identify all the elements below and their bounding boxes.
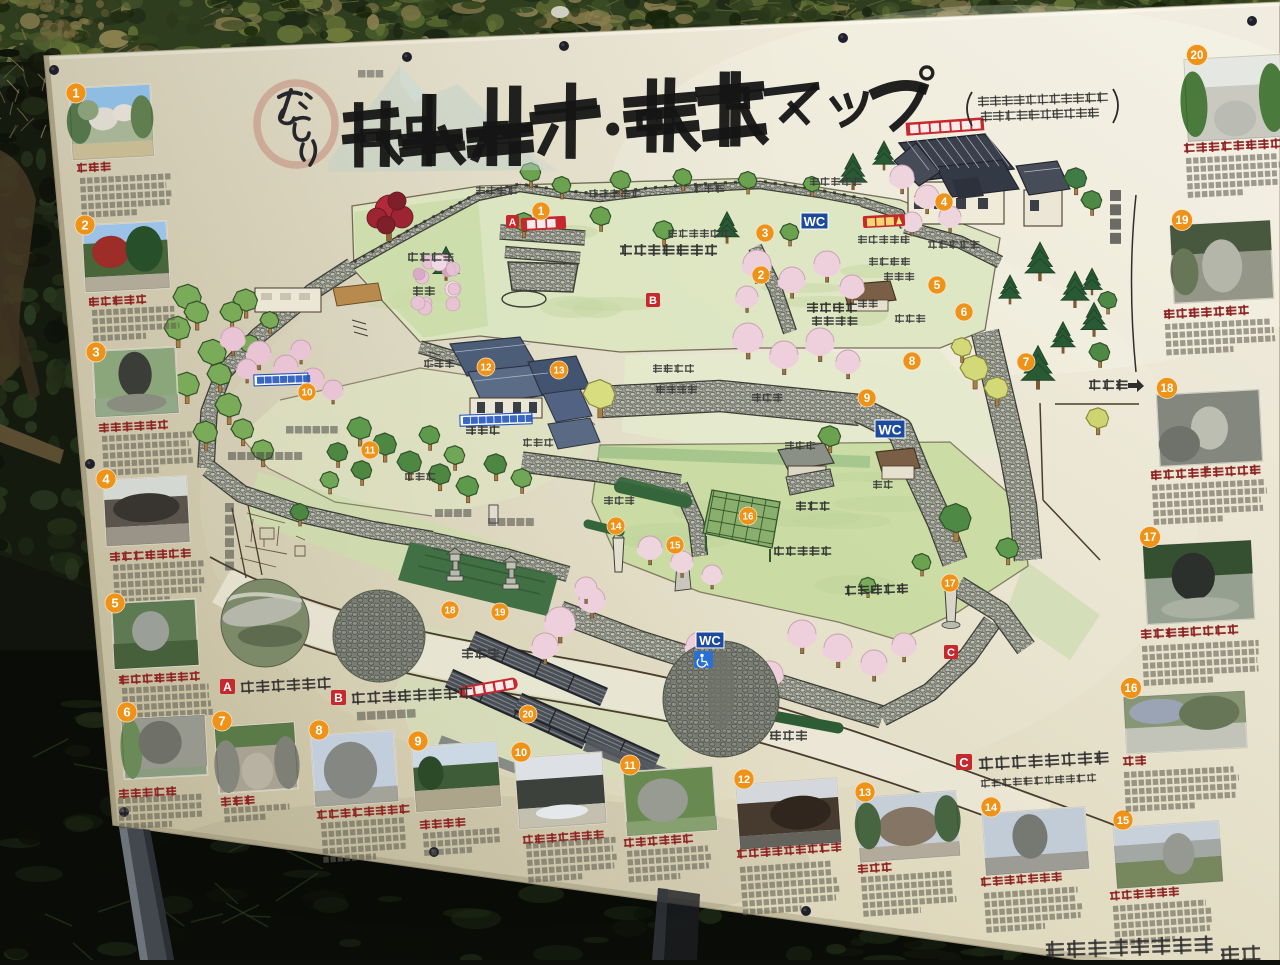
svg-text:10: 10	[515, 747, 527, 759]
svg-text:12: 12	[738, 774, 750, 786]
svg-text:14: 14	[611, 522, 622, 533]
svg-text:11: 11	[365, 446, 376, 457]
svg-text:8: 8	[909, 355, 916, 368]
svg-text:15: 15	[670, 541, 681, 552]
svg-text:5: 5	[111, 596, 118, 611]
svg-text:12: 12	[481, 363, 492, 374]
svg-text:19: 19	[1176, 214, 1189, 227]
svg-text:WC: WC	[804, 214, 826, 229]
svg-text:2: 2	[758, 269, 765, 282]
svg-text:C: C	[959, 755, 969, 770]
svg-text:13: 13	[859, 787, 871, 799]
svg-text:18: 18	[445, 606, 456, 617]
svg-text:9: 9	[414, 734, 421, 749]
svg-text:14: 14	[985, 802, 998, 814]
svg-text:5: 5	[934, 279, 941, 292]
svg-text:20: 20	[523, 710, 534, 721]
svg-text:A: A	[223, 680, 232, 694]
svg-text:6: 6	[961, 306, 968, 319]
svg-text:13: 13	[554, 366, 565, 377]
svg-text:10: 10	[302, 388, 313, 399]
svg-text:C: C	[947, 647, 955, 659]
svg-text:A: A	[509, 217, 516, 228]
svg-text:18: 18	[1161, 382, 1174, 395]
svg-text:16: 16	[743, 512, 754, 523]
svg-text:1: 1	[72, 86, 79, 101]
svg-text:B: B	[649, 295, 657, 307]
svg-text:4: 4	[941, 196, 948, 209]
svg-text:6: 6	[123, 705, 130, 720]
svg-text:WC: WC	[699, 633, 721, 648]
svg-text:8: 8	[315, 723, 322, 738]
svg-text:19: 19	[495, 608, 506, 619]
svg-text:3: 3	[92, 345, 99, 360]
svg-text:WC: WC	[878, 421, 901, 437]
svg-text:B: B	[334, 691, 343, 705]
svg-text:17: 17	[945, 579, 956, 590]
svg-text:7: 7	[1023, 356, 1030, 369]
svg-text:2: 2	[81, 218, 88, 233]
svg-text:9: 9	[864, 392, 871, 405]
svg-text:1: 1	[538, 205, 545, 218]
svg-text:7: 7	[218, 714, 225, 729]
svg-text:3: 3	[762, 227, 769, 240]
svg-text:15: 15	[1117, 815, 1129, 827]
svg-text:20: 20	[1191, 49, 1204, 62]
svg-text:4: 4	[102, 472, 110, 487]
svg-text:11: 11	[624, 760, 636, 772]
svg-text:16: 16	[1125, 682, 1138, 695]
svg-text:17: 17	[1144, 531, 1157, 544]
